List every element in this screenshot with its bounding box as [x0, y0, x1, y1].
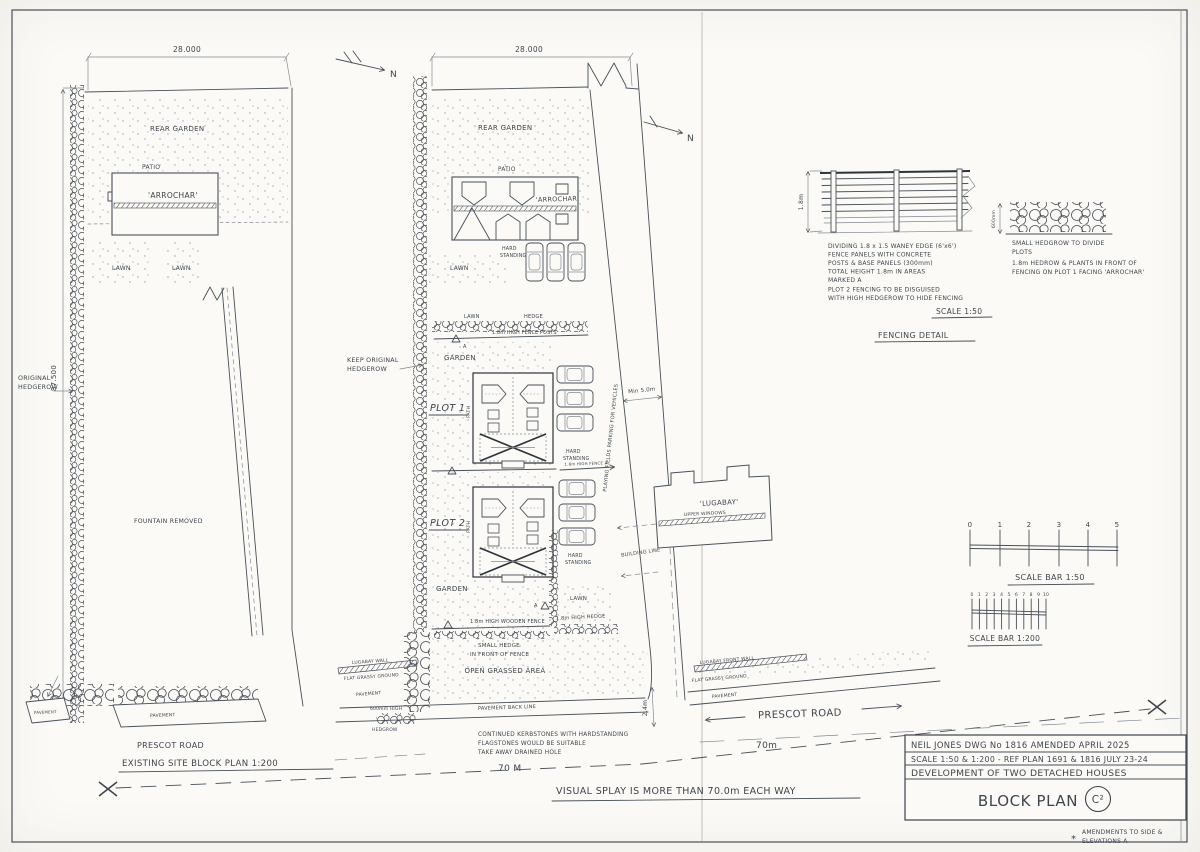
proposed-patio: PATIO [498, 167, 516, 173]
fence-note-4: TOTAL HEIGHT 1.8m IN AREAS [827, 269, 925, 276]
existing-site-plan: 28.000 87.500 ORIGINAL HEDGEROW REAR GAR… [18, 45, 333, 772]
existing-patio: PATIO [142, 164, 160, 171]
pavement-line-label: PAVEMENT BACK LINE [478, 704, 536, 712]
divider-fence-note: 1.8m HIGH FENCE A [564, 460, 607, 466]
hedge600-2: HEDGROW [372, 727, 398, 733]
keep-hedgerow-2: HEDGEROW [347, 366, 388, 373]
hs1-1: HARD [566, 449, 581, 455]
lugabay-building: 'LUGABAY' UPPER WINDOWS [654, 465, 772, 548]
amendment-note-1: AMENDMENTS TO SIDE & [1082, 829, 1163, 836]
existing-house-name: 'ARROCHAR' [148, 191, 198, 200]
bar200-tick-3: 3 [993, 592, 996, 598]
hs2-1: HARD [568, 553, 583, 559]
kerb-note-2: FLAGSTONES WOULD BE SUITABLE [478, 741, 586, 747]
hs2-2: STANDING [565, 560, 592, 566]
existing-plan-caption: EXISTING SITE BLOCK PLAN 1:200 [122, 759, 278, 769]
drawing-title: BLOCK PLAN [978, 792, 1078, 810]
north-label-2: N [687, 134, 694, 144]
amendment-star: * [1071, 834, 1076, 845]
plot1-house [473, 373, 553, 468]
drive-note: PLAYING FIELDS PARKING FOR VEHICLES [602, 384, 619, 492]
bar200-tick-10: 10 [1043, 592, 1049, 598]
fence-posts-label: 1.8m HIGH FENCE POSTS [492, 330, 557, 336]
hedgerow-west [70, 85, 84, 723]
block-plan-drawing: 28.000 87.500 ORIGINAL HEDGEROW REAR GAR… [0, 0, 1200, 852]
bar200-tick-7: 7 [1022, 592, 1025, 598]
hedge-note-4: FENCING ON PLOT 1 FACING 'ARROCHAR' [1012, 269, 1144, 276]
title-row1: NEIL JONES DWG No 1816 AMENDED APRIL 202… [911, 740, 1130, 750]
title-row2: SCALE 1:50 & 1:200 - REF PLAN 1691 & 181… [911, 755, 1148, 764]
bar200-tick-8: 8 [1030, 592, 1033, 598]
amendment-note-2: ELEVATIONS A [1082, 838, 1128, 845]
plot2-label: PLOT 2 [430, 518, 465, 529]
fencing-detail-caption: FENCING DETAIL [878, 331, 949, 340]
open-grassed-label: OPEN GRASSED AREA [465, 667, 546, 675]
pavement1-label: PAVEMENT [356, 690, 382, 698]
fence-note-7: WITH HIGH HEDGEROW TO HIDE FENCING [828, 295, 963, 302]
fence-dim18: 1.8m [798, 194, 805, 210]
north-arrow-1: N [336, 51, 397, 80]
bar50-tick-5: 5 [1115, 521, 1120, 529]
existing-road-label: PRESCOT ROAD [137, 741, 204, 750]
bar50-tick-1: 1 [998, 521, 1003, 529]
hedgerow-west-proposed [413, 76, 427, 632]
existing-lawn1: LAWN [112, 265, 131, 272]
road-label: PRESCOT ROAD [758, 708, 842, 722]
bar200-tick-6: 6 [1015, 592, 1018, 598]
bar50-tick-3: 3 [1057, 521, 1062, 529]
drawing-sheet: 28.000 87.500 ORIGINAL HEDGEROW REAR GAR… [0, 0, 1200, 852]
bar200-tick-0: 0 [970, 592, 973, 598]
existing-pavement-label: PAVEMENT [150, 712, 176, 719]
original-hedgerow-label2: HEDGEROW [18, 384, 59, 391]
bar200-tick-2: 2 [985, 592, 988, 598]
flat-grassy1-label: FLAT GRASSY GROUND [344, 672, 400, 682]
revision-label: C² [1092, 794, 1104, 806]
title-block: NEIL JONES DWG No 1816 AMENDED APRIL 202… [905, 735, 1186, 845]
fence-note-5: MARKED A [828, 277, 862, 284]
bar200-tick-4: 4 [1000, 592, 1003, 598]
small-hedge-1: SMALL HEDGE [478, 643, 520, 649]
hedge-note-3: 1.8m HEDROW & PLANTS IN FRONT OF [1012, 260, 1137, 267]
garden2-label: GARDEN [436, 585, 468, 593]
hedge-detail-drawing [1010, 202, 1106, 232]
hedge-dim600: 600mm [991, 210, 997, 228]
fountain-removed: FOUNTAIN REMOVED [134, 518, 203, 525]
dim70l-label: 70 M [498, 764, 522, 774]
keep-hedgerow-1: KEEP ORIGINAL [347, 357, 399, 364]
proposed-house-arrochar: 'ARROCHAR' [452, 177, 579, 240]
title-row3: DEVELOPMENT OF TWO DETACHED HOUSES [911, 768, 1127, 779]
lawn-strip-label: LAWN [464, 314, 480, 320]
lawn2-label: LAWN [570, 596, 587, 602]
splay-x-left [99, 782, 117, 796]
hedge-note-1: SMALL HEDGROW TO DIVIDE [1012, 240, 1104, 247]
fence-note-6: PLOT 2 FENCING TO BE DISGUISED [828, 287, 940, 294]
fence-scale: SCALE 1:50 [936, 307, 982, 316]
hedge-strip-label: HEDGE [524, 314, 543, 320]
fence-note-1: DIVIDING 1.8 x 1.5 WANEY EDGE (6'x6') [828, 243, 956, 250]
splay-x-right [1148, 700, 1166, 714]
original-hedgerow-label: ORIGINAL [18, 375, 51, 382]
path1-label: PATH [466, 406, 472, 418]
hedge-detail: 600mm SMALL HEDGROW TO DIVIDE PLOTS 1.8m… [991, 202, 1144, 276]
existing-lawn2: LAWN [172, 265, 191, 272]
kerb-note-3: TAKE AWAY DRAINED HOLE [477, 750, 562, 756]
bar200-tick-5: 5 [1007, 592, 1010, 598]
dim24-label: 2.4m [642, 700, 649, 716]
garden1-label: GARDEN [444, 354, 476, 362]
path2-label: PATH [466, 521, 472, 533]
plot2-house [473, 487, 553, 582]
proposed-house-name: 'ARROCHAR' [536, 194, 579, 204]
bar200-tick-1: 1 [978, 592, 981, 598]
existing-pavement-label2: PAVEMENT [34, 709, 57, 715]
mark-a1: A [463, 344, 467, 350]
fence-note-3: POSTS & BASE PANELS (300mm) [828, 260, 933, 267]
bar200-tick-9: 9 [1037, 592, 1040, 598]
hs-top-1: HARD [502, 246, 517, 252]
proposed-rear-garden: REAR GARDEN [478, 124, 532, 132]
splay-note: VISUAL SPLAY IS MORE THAN 70.0m EACH WAY [556, 786, 796, 797]
scale-bars: 0 1 2 3 4 5 SCALE BAR 1:50 0 1 2 3 4 5 6… [968, 521, 1120, 646]
existing-rear-garden: REAR GARDEN [150, 125, 204, 133]
fence-note-2: FENCE PANELS WITH CONCRETE [828, 252, 931, 259]
hedge-note-2: PLOTS [1012, 249, 1032, 256]
pavement3-label: PAVEMENT [712, 692, 738, 700]
wooden-fence-label: 1.8m HIGH WOODEN FENCE [470, 619, 545, 625]
small-hedge-2: IN FRONT OF FENCE [470, 652, 529, 658]
plot1-label: PLOT 1 [430, 403, 465, 414]
building-line-label: BUILDING LINE [621, 547, 661, 558]
min5-dim: Min 5.0m [628, 387, 656, 396]
mark-a2: A [534, 603, 538, 609]
proposed-site-plan: 28.000 N N REAR GARDEN PATIO 'ARROCHAR' … [336, 45, 940, 801]
bar200-label: SCALE BAR 1:200 [970, 634, 1040, 643]
north-arrow-2: N [644, 116, 694, 144]
bar50-tick-4: 4 [1086, 521, 1091, 529]
bar50-label: SCALE BAR 1:50 [1015, 573, 1085, 582]
proposed-width-dim: 28.000 [515, 45, 543, 54]
existing-house-arrochar: 'ARROCHAR' [108, 173, 218, 235]
kerb-note-1: CONTINUED KERBSTONES WITH HARDSTANDING [478, 732, 629, 738]
existing-width-dim: 28.000 [173, 45, 201, 54]
hs-top-2: STANDING [500, 253, 527, 259]
north-label-1: N [390, 70, 397, 80]
bar50-tick-0: 0 [968, 521, 973, 529]
proposed-lawn-top: LAWN [450, 265, 469, 272]
fencing-detail: 1.8m DIVIDING 1.8 x 1.5 WANEY EDGE (6'x6… [798, 169, 992, 342]
bar50-tick-2: 2 [1027, 521, 1032, 529]
